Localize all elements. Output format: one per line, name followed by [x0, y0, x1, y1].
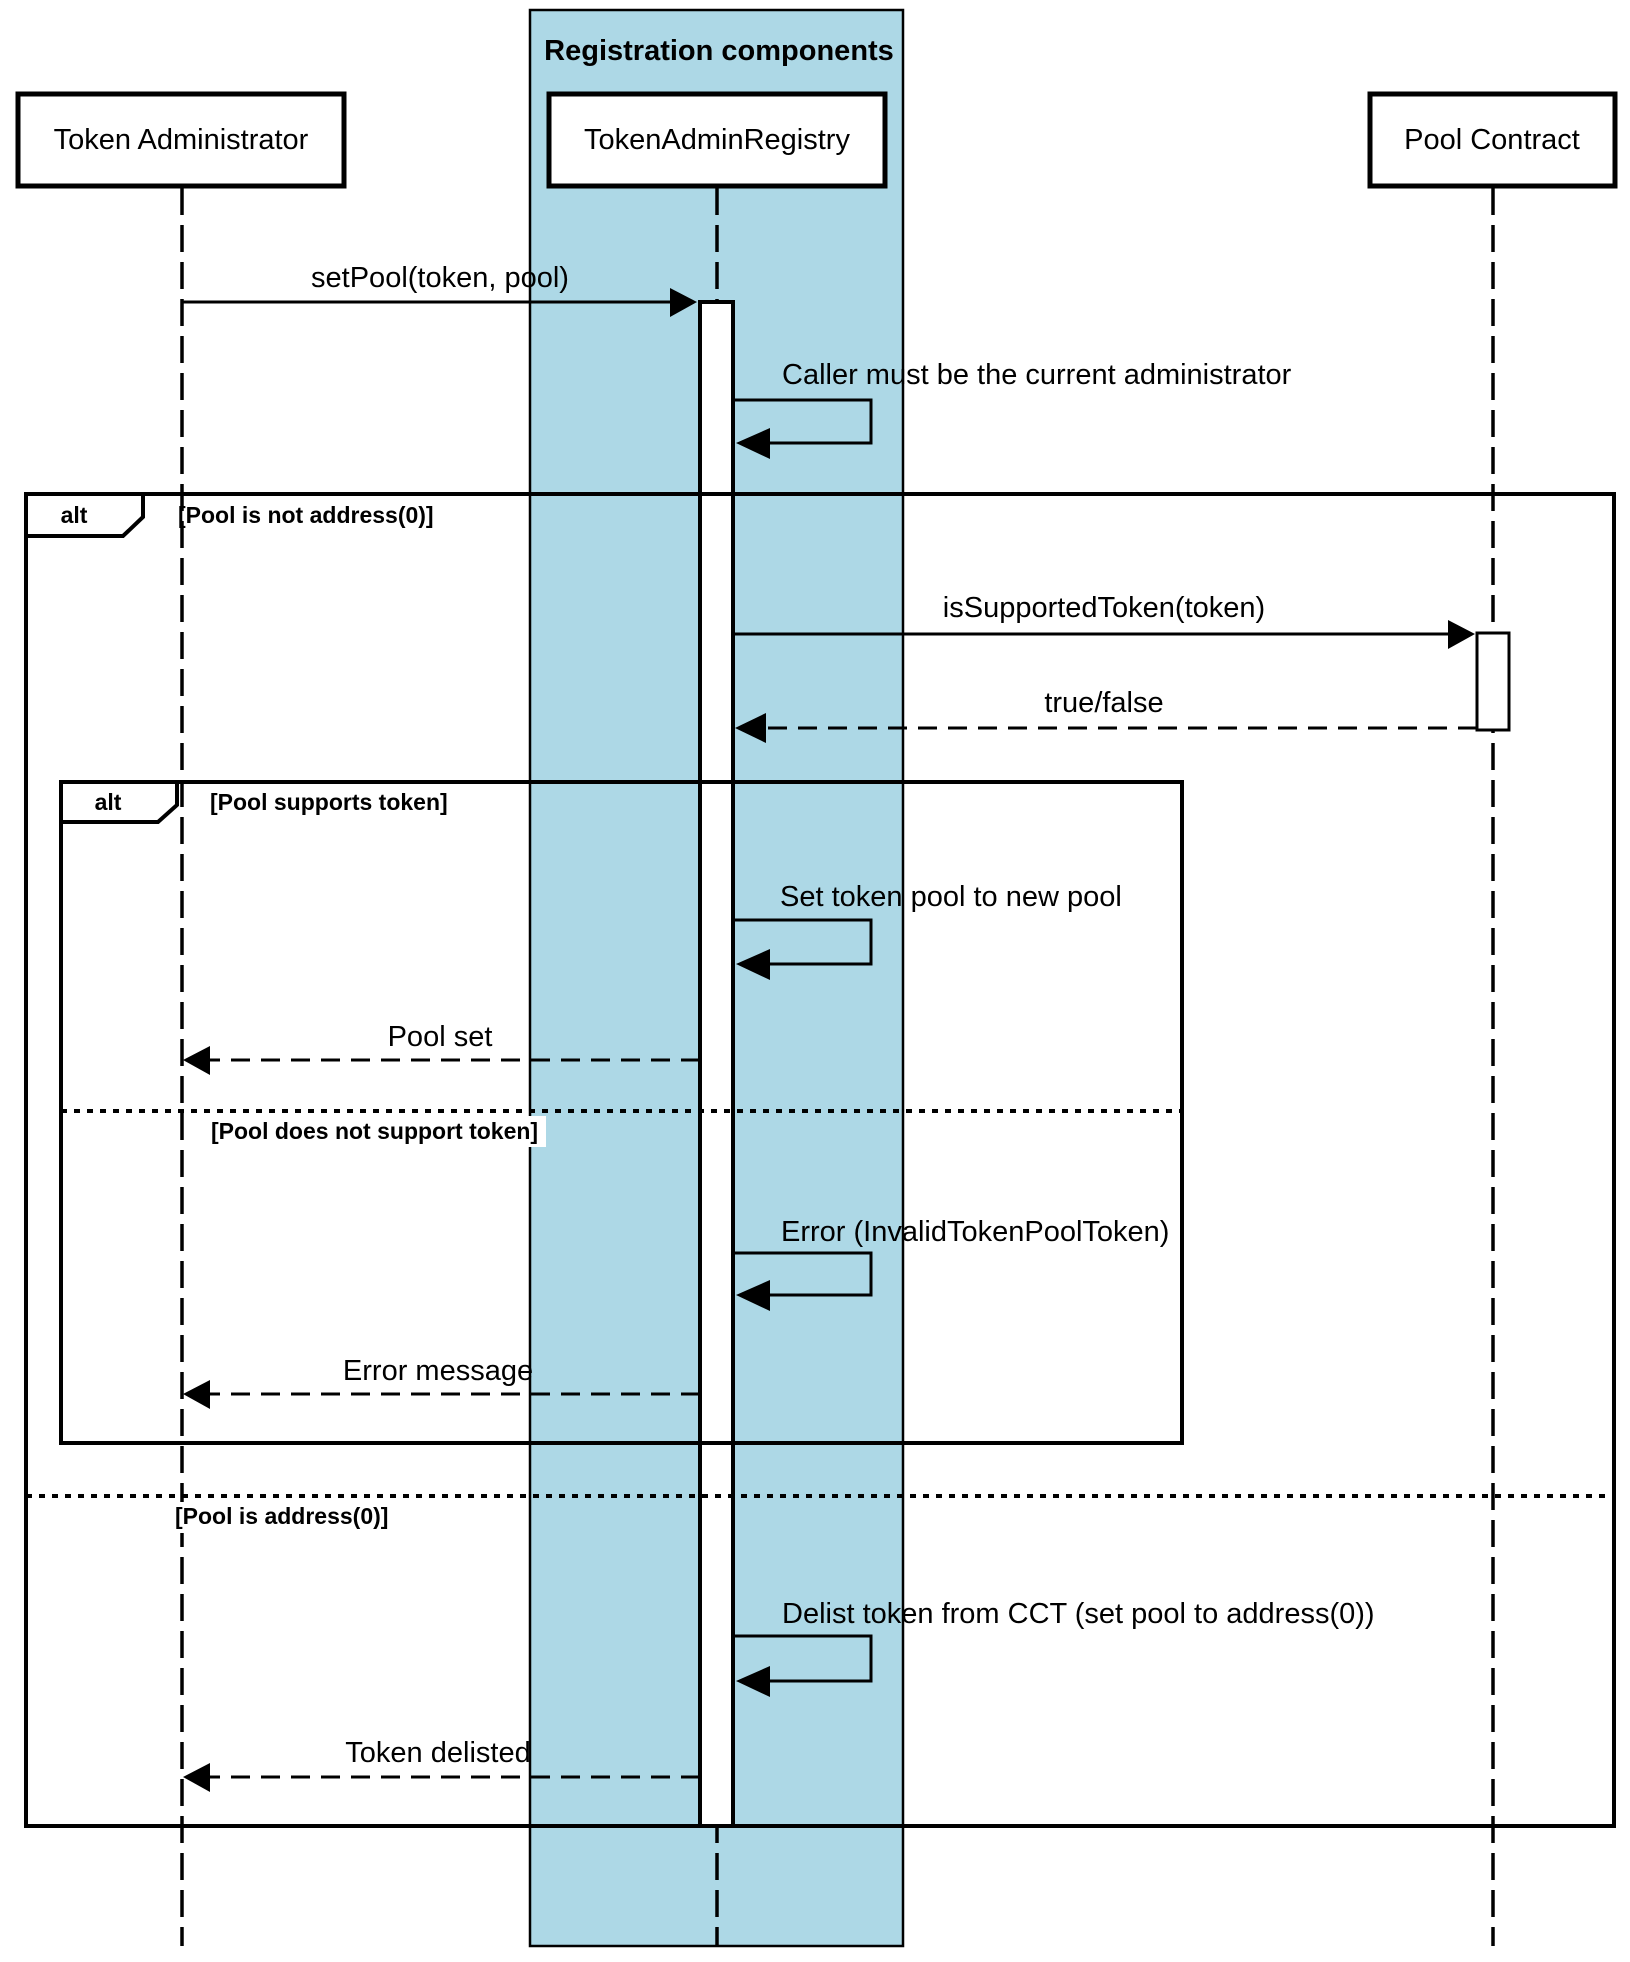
svg-text:Error (InvalidTokenPoolToken): Error (InvalidTokenPoolToken) [781, 1216, 1169, 1248]
svg-text:Registration components: Registration components [544, 35, 894, 67]
svg-text:Pool set: Pool set [388, 1021, 493, 1053]
svg-text:[Pool is not address(0)]: [Pool is not address(0)] [178, 502, 434, 528]
svg-text:TokenAdminRegistry: TokenAdminRegistry [584, 124, 850, 156]
svg-text:Set token pool to new pool: Set token pool to new pool [780, 881, 1122, 913]
svg-text:true/false: true/false [1044, 687, 1163, 719]
svg-text:Token Administrator: Token Administrator [54, 124, 309, 156]
svg-text:Caller must be the current adm: Caller must be the current administrator [782, 359, 1292, 391]
svg-text:alt: alt [95, 789, 122, 815]
svg-text:Error message: Error message [343, 1355, 533, 1387]
svg-text:[Pool does not support token]: [Pool does not support token] [211, 1118, 538, 1144]
svg-text:[Pool is address(0)]: [Pool is address(0)] [175, 1503, 388, 1529]
svg-text:[Pool supports token]: [Pool supports token] [210, 789, 448, 815]
svg-text:alt: alt [61, 502, 88, 528]
svg-text:Delist token from CCT (set poo: Delist token from CCT (set pool to addre… [782, 1598, 1375, 1630]
svg-text:Pool Contract: Pool Contract [1404, 124, 1580, 156]
svg-text:Token delisted: Token delisted [345, 1737, 530, 1769]
svg-text:isSupportedToken(token): isSupportedToken(token) [943, 592, 1265, 624]
svg-text:setPool(token, pool): setPool(token, pool) [311, 262, 569, 294]
